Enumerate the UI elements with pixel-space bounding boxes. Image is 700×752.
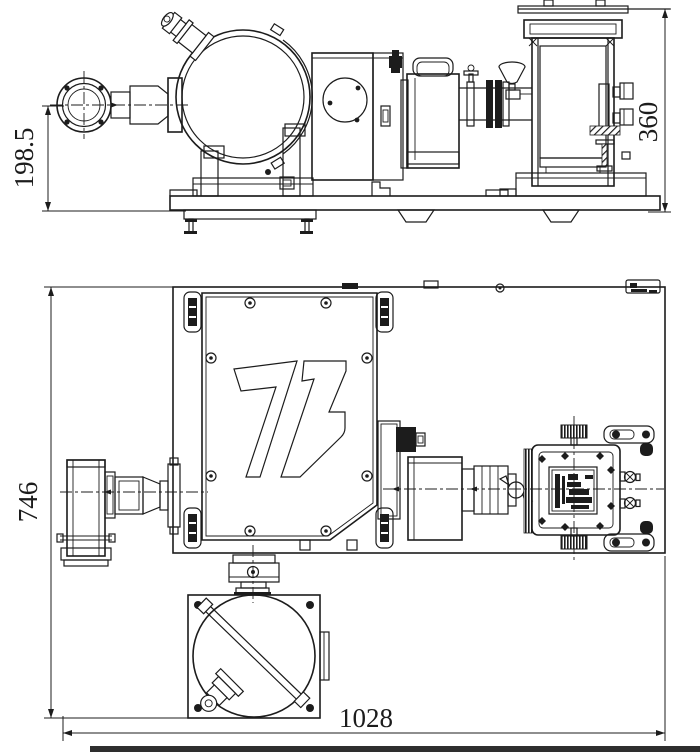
hatched-seal [590,126,620,135]
technical-drawing-page: 198.5 [0,0,700,752]
drawing-canvas: 198.5 [0,0,700,752]
dim-label-right-height: 360 [633,102,663,143]
paper-background [0,0,700,752]
knurled-flange-ring [524,449,532,533]
bottom-edge-strip [90,746,700,752]
dim-label-left-height: 198.5 [9,128,39,189]
dim-label-depth: 746 [13,482,43,523]
dim-label-width: 1028 [339,703,393,733]
